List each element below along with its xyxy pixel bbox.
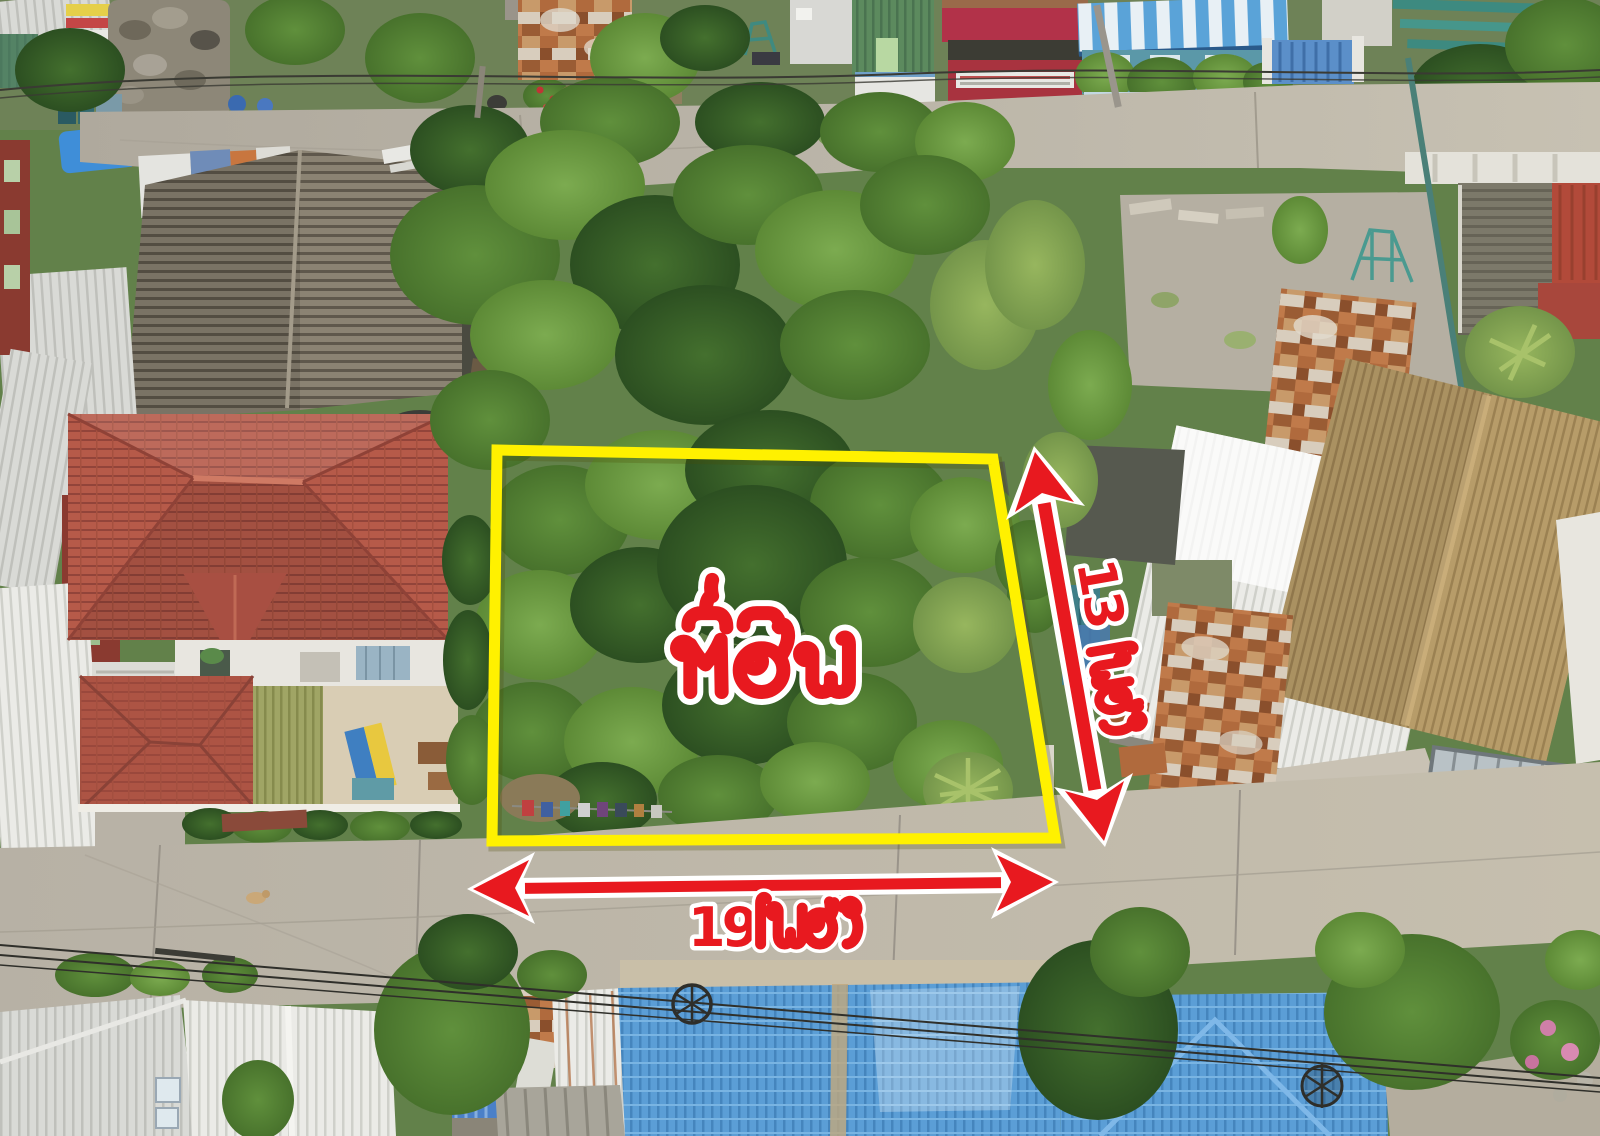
red-tile-roof-house bbox=[68, 414, 462, 843]
red-awning-house bbox=[942, 0, 1088, 102]
ac-unit bbox=[796, 8, 812, 20]
depth-value: 13 bbox=[1064, 555, 1135, 631]
blue-roof-left bbox=[618, 982, 1062, 1136]
banana-trees bbox=[1465, 306, 1575, 398]
junk-pile bbox=[108, 0, 230, 116]
width-value: 19 bbox=[688, 896, 757, 959]
scene-canvas: 13 19 bbox=[0, 0, 1600, 1136]
olive-roof bbox=[253, 686, 323, 804]
fan-antenna bbox=[1302, 1064, 1342, 1108]
green-house bbox=[852, 0, 935, 102]
aerial-photo: 13 19 ที่ดิน 19 เมตร 13 เมตร bbox=[0, 0, 1600, 1136]
